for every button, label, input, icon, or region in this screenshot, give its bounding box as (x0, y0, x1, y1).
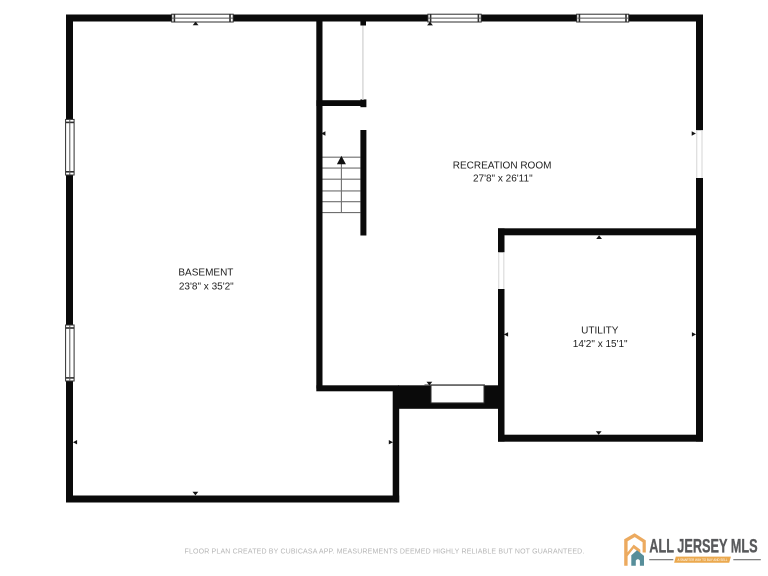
svg-text:14'2" x 15'1": 14'2" x 15'1" (573, 339, 628, 350)
svg-text:27'8" x 26'11": 27'8" x 26'11" (473, 174, 533, 185)
svg-text:A SMARTER WAY TO BUY AND SELL: A SMARTER WAY TO BUY AND SELL (678, 558, 728, 562)
svg-text:23'8" x 35'2": 23'8" x 35'2" (179, 282, 234, 293)
svg-text:RECREATION ROOM: RECREATION ROOM (453, 161, 552, 172)
svg-text:ALL JERSEY MLS: ALL JERSEY MLS (649, 536, 757, 557)
svg-text:FLOOR PLAN CREATED BY CUBICASA: FLOOR PLAN CREATED BY CUBICASA APP. MEAS… (185, 548, 585, 555)
svg-text:UTILITY: UTILITY (581, 325, 619, 336)
svg-text:BASEMENT: BASEMENT (178, 267, 233, 278)
